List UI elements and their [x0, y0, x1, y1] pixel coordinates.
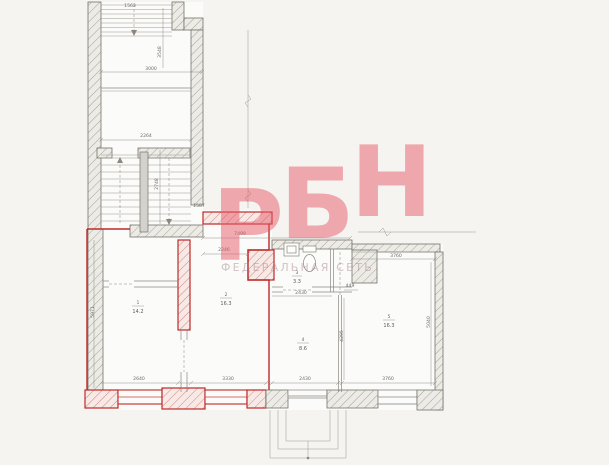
watermark-letter-2: Б [280, 156, 351, 254]
dim-room3-width: 2430 [299, 376, 311, 382]
svg-text:16.3: 16.3 [383, 323, 394, 329]
svg-text:1: 1 [137, 300, 140, 305]
dim-pier-width: 449 [346, 283, 355, 289]
watermark-letter-3: Н [351, 134, 429, 232]
dim-room1-width: 2640 [133, 376, 145, 382]
svg-text:16.3: 16.3 [220, 301, 231, 307]
balcony [270, 410, 346, 459]
svg-text:2: 2 [225, 292, 228, 297]
svg-text:14.2: 14.2 [132, 309, 143, 315]
dim-stair-height: 2748 [154, 178, 160, 190]
svg-text:5: 5 [388, 314, 391, 319]
watermark-logo: РБН [212, 128, 429, 226]
dim-top-flight: 1563 [124, 3, 136, 9]
svg-text:8.6: 8.6 [299, 346, 307, 352]
dim-top-width: 3000 [145, 66, 157, 72]
dim-stair-door: 1587 [193, 203, 205, 209]
dim-room2-width: 3330 [222, 376, 234, 382]
watermark-subtext: ФЕДЕРАЛЬНАЯ СЕТЬ [221, 261, 374, 274]
dim-left-height: 5971 [90, 306, 96, 318]
dim-lobby-width: 2264 [140, 133, 152, 139]
floor-plan-screenshot: 1563 3000 2264 1587 7499 2246 449 3760 2… [0, 0, 609, 465]
svg-text:3.3: 3.3 [293, 279, 301, 285]
dim-top-room-height: 3548 [157, 46, 163, 58]
dim-room4-width: 3760 [382, 376, 394, 382]
dim-wing-top-width: 3760 [390, 253, 402, 259]
stair-stringer [140, 152, 148, 232]
dim-mid-height: 4295 [339, 330, 345, 342]
dim-right-height: 5040 [426, 316, 432, 328]
svg-text:4: 4 [302, 337, 305, 342]
dim-bath-width: 2430 [295, 290, 307, 296]
